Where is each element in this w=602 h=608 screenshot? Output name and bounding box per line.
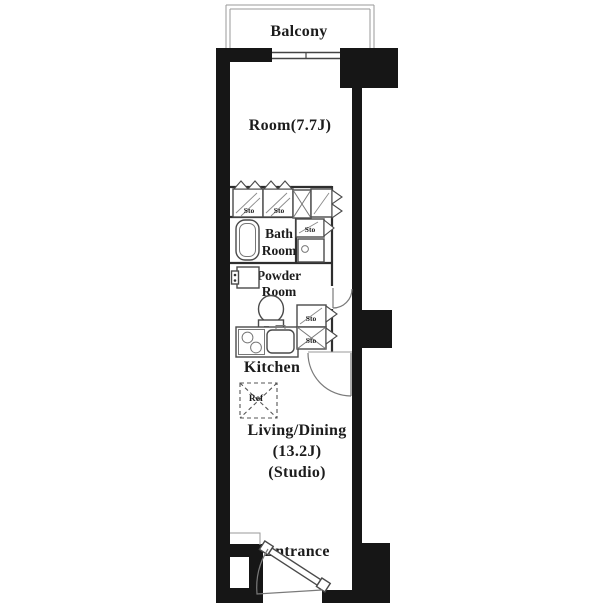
bath-label-1: Bath	[265, 226, 293, 241]
storage-label: Sto	[274, 206, 285, 215]
bath-room: Bath Room	[236, 220, 297, 260]
window-icon	[272, 53, 340, 59]
wall-pillar-bottom-right	[352, 543, 390, 603]
wall-pillar-top-right	[340, 48, 398, 88]
vanity-knob	[234, 274, 237, 277]
bath-label-2: Room	[262, 243, 297, 258]
living-door	[308, 353, 351, 396]
powder-label-1: Powder	[257, 268, 301, 283]
floor-plan-page: Balcony Room(7.7J) Sto	[0, 0, 602, 608]
storage-label: Sto	[244, 206, 255, 215]
vanity-knob	[234, 279, 237, 282]
folding-door-icon	[332, 190, 342, 204]
floor-plan-svg: Balcony Room(7.7J) Sto	[0, 0, 602, 608]
vanity-faucet-icon	[232, 271, 239, 284]
vanity-sink-icon	[237, 267, 259, 288]
kitchen-sink-icon	[267, 330, 294, 353]
kitchen-label: Kitchen	[244, 359, 300, 376]
wall-meterbox-foot	[230, 588, 249, 603]
folding-door-icon	[234, 181, 248, 189]
refrigerator-label: Ref	[249, 394, 264, 404]
storage-label: Sto	[306, 314, 317, 323]
storage-label: Sto	[306, 336, 317, 345]
door-swing-arc	[308, 353, 351, 396]
kitchen: Kitchen Sto Sto Ref	[236, 305, 337, 418]
balcony-label: Balcony	[270, 23, 327, 40]
genkan-step-line	[230, 533, 260, 545]
living-dining: Living/Dining (13.2J) (Studio)	[247, 422, 346, 481]
wall-bottom	[322, 590, 354, 603]
balcony-area: Balcony	[226, 5, 374, 48]
refrigerator-icon: Ref	[240, 383, 277, 418]
living-label-1: Living/Dining	[247, 422, 346, 439]
door-swing-arc	[333, 289, 352, 308]
room-label: Room(7.7J)	[249, 117, 332, 134]
wall-left	[216, 48, 230, 603]
wall-pillar-right-mid	[352, 310, 392, 348]
utility-column: Sto	[296, 219, 334, 262]
folding-door-icon	[332, 204, 342, 218]
living-label-2: (13.2J)	[273, 443, 322, 460]
folding-door-icon	[264, 181, 278, 189]
folding-door-icon	[248, 181, 262, 189]
entrance: Entrance	[230, 533, 330, 594]
powder-room: Powder Room	[232, 267, 353, 333]
wall-entrance-stub	[230, 544, 263, 557]
folding-door-icon	[278, 181, 292, 189]
living-label-3: (Studio)	[268, 464, 326, 481]
storage-label: Sto	[305, 225, 316, 234]
